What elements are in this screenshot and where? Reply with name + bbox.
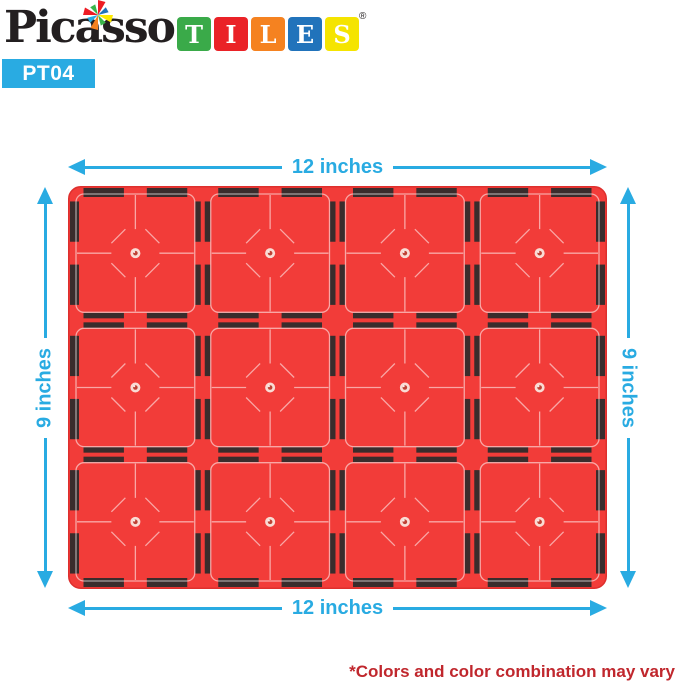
tiles-letter-blocks: TILES	[177, 17, 359, 51]
dimension-left-label-wrap: 9 inches	[32, 338, 58, 438]
dimension-line	[85, 166, 282, 169]
dimension-left: 9 inches	[32, 187, 58, 588]
dimension-line	[44, 438, 47, 572]
arrowhead-down-icon	[37, 571, 53, 588]
magnetic-baseplate	[68, 186, 607, 589]
product-code-badge: PT04	[2, 59, 95, 88]
dimension-right-label-wrap: 9 inches	[615, 338, 641, 438]
arrowhead-up-icon	[620, 187, 636, 204]
dimension-line	[627, 204, 630, 338]
arrowhead-right-icon	[590, 600, 607, 616]
arrowhead-left-icon	[68, 159, 85, 175]
arrowhead-up-icon	[37, 187, 53, 204]
pinwheel-star-icon	[82, 0, 114, 30]
dimension-bottom: 12 inches	[68, 595, 607, 621]
tiles-letter-block: L	[251, 17, 285, 51]
dimension-bottom-label: 12 inches	[282, 597, 393, 620]
dimension-left-label: 9 inches	[34, 347, 57, 427]
dimension-top: 12 inches	[68, 154, 607, 180]
tiles-letter-block: T	[177, 17, 211, 51]
arrowhead-right-icon	[590, 159, 607, 175]
dimension-line	[44, 204, 47, 338]
tiles-letter-block: E	[288, 17, 322, 51]
disclaimer-text: *Colors and color combination may vary	[349, 662, 675, 682]
arrowhead-down-icon	[620, 571, 636, 588]
dimension-top-label: 12 inches	[282, 156, 393, 179]
dimension-line	[393, 166, 590, 169]
dimension-line	[85, 607, 282, 610]
registered-trademark: ®	[359, 11, 366, 22]
tiles-letter-block: S	[325, 17, 359, 51]
tiles-letter-block: I	[214, 17, 248, 51]
dimension-right-label: 9 inches	[617, 347, 640, 427]
arrowhead-left-icon	[68, 600, 85, 616]
dimension-line	[393, 607, 590, 610]
dimension-right: 9 inches	[615, 187, 641, 588]
dimension-line	[627, 438, 630, 572]
